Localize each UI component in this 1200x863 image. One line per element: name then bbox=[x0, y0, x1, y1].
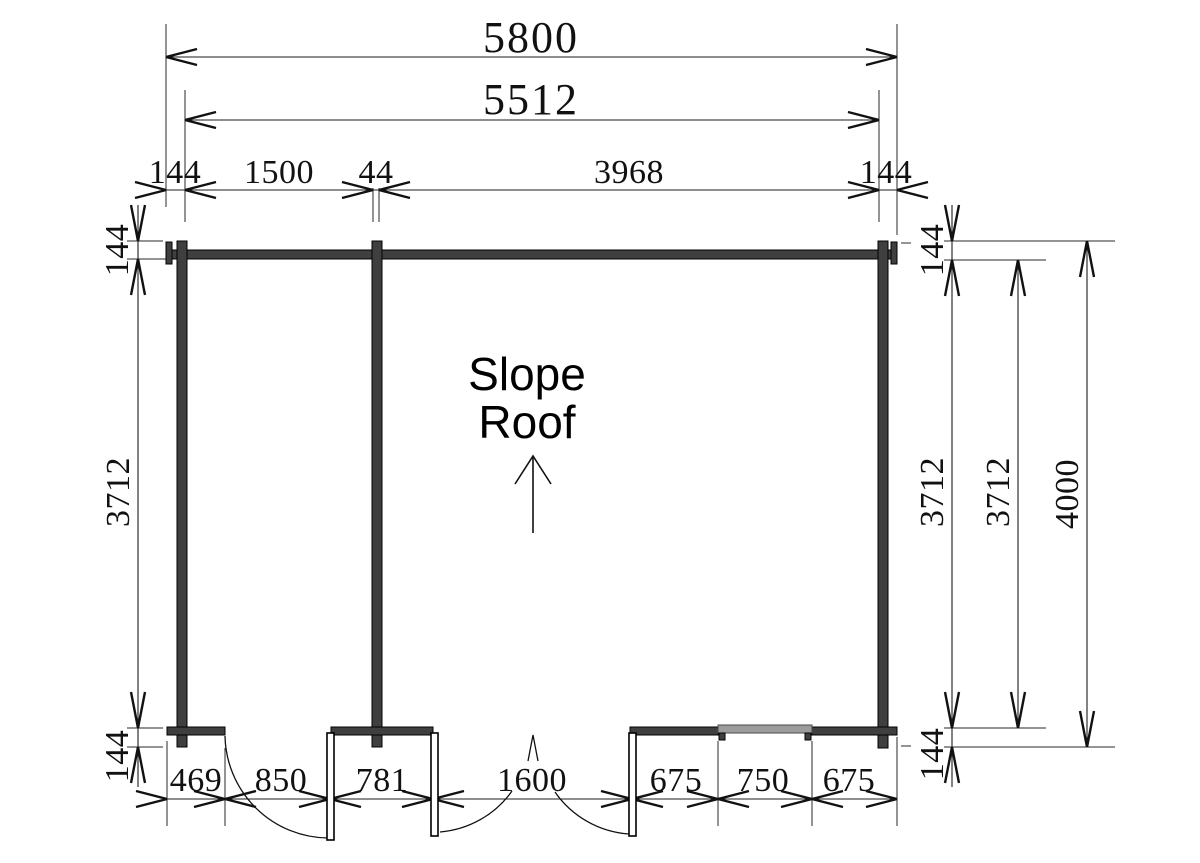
dim-top-seg-0: 144 bbox=[149, 154, 202, 191]
slope-roof-label-line2: Roof bbox=[478, 396, 575, 448]
right-wall bbox=[878, 241, 888, 748]
dim-left-top: 144 bbox=[99, 224, 136, 277]
roof-slope-annotation: Slope Roof bbox=[468, 348, 586, 533]
top-wall bbox=[167, 250, 897, 259]
dim-log-length: 5512 bbox=[483, 75, 579, 124]
bottom-wall-segment-1 bbox=[167, 727, 225, 735]
partition-wall bbox=[372, 241, 382, 747]
dim-bottom-seg-4: 675 bbox=[650, 762, 703, 799]
dim-bottom-seg-0: 469 bbox=[170, 762, 223, 799]
dim-right-inner2: 3712 bbox=[980, 457, 1017, 527]
dim-right-bottom: 144 bbox=[914, 728, 951, 781]
dim-right-top: 144 bbox=[914, 224, 951, 277]
dim-bottom-seg-6: 675 bbox=[823, 762, 876, 799]
dim-top-seg-4: 144 bbox=[860, 154, 913, 191]
dim-left-middle: 3712 bbox=[100, 457, 137, 527]
floor-plan-sheet: Slope Roof 5800 5512 144 1500 44 3968 14… bbox=[0, 0, 1200, 863]
dim-overall-width: 5800 bbox=[483, 13, 579, 62]
left-wall bbox=[177, 241, 187, 747]
double-door-right-leaf bbox=[629, 733, 636, 836]
bottom-wall-segment-3 bbox=[630, 727, 718, 735]
dimension-labels: 5800 5512 144 1500 44 3968 144 469 850 7… bbox=[99, 13, 1086, 799]
dim-bottom-seg-2: 781 bbox=[356, 762, 409, 799]
top-wall-left-cap bbox=[166, 242, 172, 264]
double-door-left-leaf bbox=[431, 733, 438, 836]
window-right-post bbox=[805, 733, 811, 740]
dim-bottom-seg-1: 850 bbox=[255, 762, 308, 799]
floor-plan-drawing: Slope Roof 5800 5512 144 1500 44 3968 14… bbox=[0, 0, 1200, 863]
dim-bottom-seg-3: 1600 bbox=[497, 762, 567, 799]
bottom-wall-segment-2 bbox=[331, 727, 433, 735]
dim-top-seg-2: 44 bbox=[359, 154, 394, 191]
window-frame bbox=[718, 725, 812, 733]
double-door-meeting-caret bbox=[528, 735, 538, 761]
front-window bbox=[718, 725, 812, 740]
dim-bottom-seg-5: 750 bbox=[737, 762, 790, 799]
extension-lines bbox=[127, 24, 1115, 826]
top-wall-right-cap bbox=[891, 242, 897, 264]
window-left-post bbox=[719, 733, 725, 740]
bottom-wall-segment-4 bbox=[812, 727, 897, 735]
walls bbox=[166, 241, 897, 748]
dim-top-seg-1: 1500 bbox=[244, 154, 314, 191]
single-door-leaf bbox=[327, 733, 334, 840]
dim-top-seg-3: 3968 bbox=[594, 154, 664, 191]
dim-left-bottom: 144 bbox=[99, 730, 136, 783]
slope-roof-label-line1: Slope bbox=[468, 348, 586, 400]
dim-right-inner: 3712 bbox=[914, 457, 951, 527]
dim-right-outer: 4000 bbox=[1049, 459, 1086, 529]
